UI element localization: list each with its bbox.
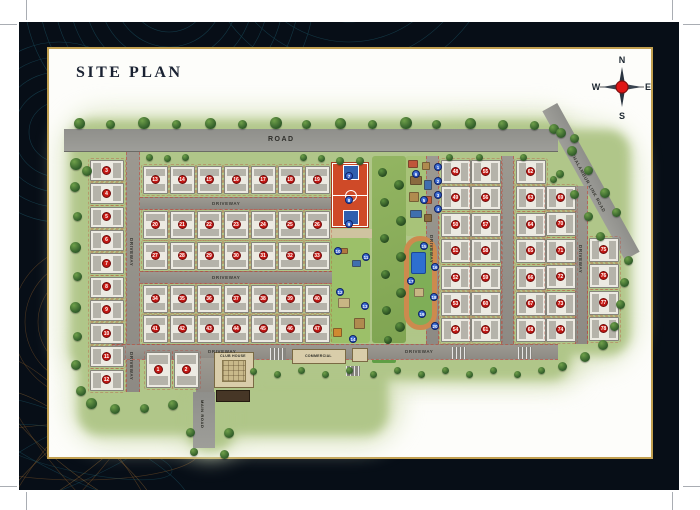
main-top-road bbox=[64, 129, 558, 152]
amenity-number-marker: 13 bbox=[361, 302, 369, 310]
villa-number-marker: 4 bbox=[102, 189, 111, 198]
amenity-structure bbox=[410, 210, 422, 218]
villa-number-marker: 25 bbox=[286, 220, 295, 229]
villa-number-marker: 3 bbox=[102, 166, 111, 175]
tree bbox=[205, 118, 216, 129]
club-annex-building bbox=[216, 390, 250, 402]
tree bbox=[394, 367, 401, 374]
tree bbox=[490, 367, 497, 374]
villa-number-marker: 17 bbox=[259, 175, 268, 184]
park-tree bbox=[396, 288, 406, 298]
villa-number-marker: 29 bbox=[205, 251, 214, 260]
park-tree bbox=[396, 252, 406, 262]
tree bbox=[514, 371, 521, 378]
tree bbox=[70, 182, 80, 192]
driveway-label: DRIVEWAY bbox=[129, 352, 134, 380]
villa-number-marker: 64 bbox=[526, 220, 535, 229]
park-tree bbox=[381, 270, 390, 279]
tree bbox=[168, 400, 178, 410]
villa-number-marker: 38 bbox=[259, 294, 268, 303]
swimming-pool bbox=[411, 252, 426, 274]
tree bbox=[368, 120, 377, 129]
tree bbox=[567, 146, 577, 156]
villa-number-marker: 2 bbox=[182, 365, 191, 374]
villa-number-marker: 47 bbox=[313, 324, 322, 333]
villa-number-marker: 36 bbox=[205, 294, 214, 303]
tree bbox=[442, 367, 449, 374]
tree bbox=[70, 158, 82, 170]
tree bbox=[612, 208, 621, 217]
villa-number-marker: 7 bbox=[102, 259, 111, 268]
park-tree bbox=[396, 216, 406, 226]
villa-number-marker: 46 bbox=[286, 324, 295, 333]
tree bbox=[530, 121, 539, 130]
tree bbox=[73, 332, 82, 341]
villa-number-marker: 75 bbox=[599, 245, 608, 254]
tree bbox=[346, 367, 353, 374]
villa-number-marker: 32 bbox=[286, 251, 295, 260]
amenity-number-marker: 16 bbox=[431, 263, 439, 271]
villa-number-marker: 69 bbox=[556, 193, 565, 202]
tree bbox=[498, 120, 508, 130]
amenity-structure bbox=[333, 328, 342, 337]
tree bbox=[335, 118, 346, 129]
tree bbox=[138, 117, 150, 129]
tree bbox=[250, 368, 257, 375]
commercial-label: COMMERCIAL bbox=[305, 354, 332, 358]
tree bbox=[370, 371, 377, 378]
tree bbox=[418, 371, 425, 378]
compass-south-label: S bbox=[619, 111, 625, 121]
tree bbox=[476, 154, 483, 161]
tree bbox=[140, 404, 149, 413]
compass-rose: N E S W bbox=[590, 53, 654, 123]
villa-number-marker: 60 bbox=[481, 299, 490, 308]
villa-number-marker: 50 bbox=[451, 220, 460, 229]
amenity-number-marker: 17 bbox=[407, 277, 415, 285]
tree bbox=[70, 242, 81, 253]
villa-number-marker: 55 bbox=[481, 167, 490, 176]
tree bbox=[73, 272, 82, 281]
villa-number-marker: 62 bbox=[526, 167, 535, 176]
tree bbox=[446, 154, 453, 161]
amenity-number-marker: 7 bbox=[345, 172, 353, 180]
tree bbox=[600, 188, 610, 198]
amenity-structure bbox=[352, 260, 361, 267]
villa-number-marker: 22 bbox=[205, 220, 214, 229]
park-tree bbox=[380, 234, 389, 243]
tree bbox=[106, 120, 115, 129]
tree bbox=[164, 155, 171, 162]
tree bbox=[556, 170, 564, 178]
villa-number-marker: 13 bbox=[151, 175, 160, 184]
club-house-floorplan bbox=[222, 360, 246, 382]
tree bbox=[570, 190, 579, 199]
villa-number-marker: 53 bbox=[451, 299, 460, 308]
villa-number-marker: 44 bbox=[232, 324, 241, 333]
amenity-number-marker: 18 bbox=[430, 293, 438, 301]
tree bbox=[302, 120, 311, 129]
compass-east-label: E bbox=[645, 82, 651, 92]
villa-number-marker: 28 bbox=[178, 251, 187, 260]
tree bbox=[298, 367, 305, 374]
tree bbox=[400, 117, 412, 129]
amenity-number-marker: 9 bbox=[345, 220, 353, 228]
villa-number-marker: 73 bbox=[556, 299, 565, 308]
villa-number-marker: 33 bbox=[313, 251, 322, 260]
tree bbox=[356, 157, 364, 165]
park-tree bbox=[394, 180, 404, 190]
tree bbox=[146, 154, 153, 161]
tree bbox=[596, 232, 605, 241]
tree bbox=[71, 360, 81, 370]
park-tree bbox=[395, 322, 405, 332]
driveway-label: DRIVEWAY bbox=[212, 275, 240, 280]
amenity-structure bbox=[414, 288, 424, 297]
villa-number-marker: 27 bbox=[151, 251, 160, 260]
amenity-number-marker: 14 bbox=[349, 335, 357, 343]
parking-bay bbox=[518, 347, 532, 359]
tree bbox=[76, 386, 86, 396]
tree bbox=[556, 128, 566, 138]
villa-number-marker: 77 bbox=[599, 298, 608, 307]
tree bbox=[318, 155, 325, 162]
club-house-label: CLUB HOUSE bbox=[220, 354, 246, 358]
tree bbox=[432, 120, 441, 129]
utility-building bbox=[352, 348, 368, 362]
park-tree bbox=[382, 306, 391, 315]
villa-number-marker: 24 bbox=[259, 220, 268, 229]
tree bbox=[336, 157, 344, 165]
villa-number-marker: 48 bbox=[451, 167, 460, 176]
tree bbox=[172, 120, 181, 129]
driveway-label: DRIVEWAY bbox=[212, 201, 240, 206]
tree bbox=[110, 404, 120, 414]
villa-number-marker: 10 bbox=[102, 329, 111, 338]
parking-bay bbox=[270, 348, 286, 360]
villa-number-marker: 18 bbox=[286, 175, 295, 184]
tree bbox=[620, 278, 629, 287]
villa-number-marker: 42 bbox=[178, 324, 187, 333]
villa-number-marker: 19 bbox=[313, 175, 322, 184]
villa-number-marker: 23 bbox=[232, 220, 241, 229]
amenity-number-marker: 10 bbox=[334, 247, 342, 255]
amenity-number-marker: 5 bbox=[420, 196, 428, 204]
villa-number-marker: 14 bbox=[178, 175, 187, 184]
villa-number-marker: 15 bbox=[205, 175, 214, 184]
tree bbox=[322, 371, 329, 378]
tree bbox=[186, 428, 195, 437]
villa-number-marker: 66 bbox=[526, 273, 535, 282]
park-tree bbox=[380, 198, 389, 207]
entry-road-label: MAIN ROAD bbox=[200, 400, 205, 429]
tree bbox=[70, 302, 81, 313]
tree bbox=[465, 118, 476, 129]
villa-number-marker: 31 bbox=[259, 251, 268, 260]
tree bbox=[86, 398, 97, 409]
amenity-number-marker: 6 bbox=[412, 170, 420, 178]
tree bbox=[74, 118, 85, 129]
villa-number-marker: 37 bbox=[232, 294, 241, 303]
tree bbox=[570, 134, 579, 143]
driveway-label: DRIVEWAY bbox=[405, 349, 433, 354]
tree bbox=[190, 448, 198, 456]
tree bbox=[580, 352, 590, 362]
villa-number-marker: 34 bbox=[151, 294, 160, 303]
tree bbox=[82, 166, 92, 176]
park-tree bbox=[384, 336, 392, 344]
villa-number-marker: 43 bbox=[205, 324, 214, 333]
villa-number-marker: 20 bbox=[151, 220, 160, 229]
tree bbox=[270, 117, 282, 129]
driveway-label: DRIVEWAY bbox=[578, 245, 583, 273]
amenity-structure bbox=[354, 318, 365, 329]
tree bbox=[224, 428, 234, 438]
villa-number-marker: 1 bbox=[154, 365, 163, 374]
tree bbox=[182, 154, 189, 161]
amenity-number-marker: 3 bbox=[434, 191, 442, 199]
villa-number-marker: 45 bbox=[259, 324, 268, 333]
tree bbox=[550, 176, 557, 183]
villa-number-marker: 71 bbox=[556, 246, 565, 255]
amenity-number-marker: 19 bbox=[418, 310, 426, 318]
amenity-structure bbox=[338, 298, 350, 308]
amenity-number-marker: 15 bbox=[420, 242, 428, 250]
villa-number-marker: 59 bbox=[481, 273, 490, 282]
villa-number-marker: 16 bbox=[232, 175, 241, 184]
amenity-structure bbox=[424, 214, 432, 222]
amenity-number-marker: 20 bbox=[431, 322, 439, 330]
driveway-label: DRIVEWAY bbox=[429, 235, 434, 263]
tree bbox=[584, 212, 593, 221]
tree bbox=[220, 450, 229, 459]
compass-west-label: W bbox=[592, 82, 601, 92]
villa-number-marker: 39 bbox=[286, 294, 295, 303]
park-tree bbox=[378, 168, 387, 177]
villa-number-marker: 52 bbox=[451, 273, 460, 282]
amenity-structure bbox=[422, 162, 430, 170]
tree bbox=[538, 367, 545, 374]
driveway-right-2 bbox=[501, 156, 514, 344]
villa-number-marker: 21 bbox=[178, 220, 187, 229]
tree bbox=[300, 154, 307, 161]
villa-number-marker: 11 bbox=[102, 352, 111, 361]
amenity-number-marker: 11 bbox=[362, 253, 370, 261]
villa-number-marker: 57 bbox=[481, 220, 490, 229]
villa-number-marker: 8 bbox=[102, 282, 111, 291]
top-road-label: ROAD bbox=[268, 136, 295, 143]
compass-north-label: N bbox=[619, 55, 626, 65]
tree bbox=[73, 212, 82, 221]
tree bbox=[466, 371, 473, 378]
amenity-number-marker: 4 bbox=[434, 205, 442, 213]
villa-number-marker: 26 bbox=[313, 220, 322, 229]
amenity-number-marker: 12 bbox=[336, 288, 344, 296]
villa-number-marker: 74 bbox=[556, 325, 565, 334]
villa-number-marker: 40 bbox=[313, 294, 322, 303]
tree bbox=[520, 154, 527, 161]
tree bbox=[584, 166, 593, 175]
villa-number-marker: 30 bbox=[232, 251, 241, 260]
amenity-number-marker: 8 bbox=[345, 196, 353, 204]
amenity-number-marker: 2 bbox=[434, 177, 442, 185]
tree bbox=[598, 340, 608, 350]
amenity-structure bbox=[424, 180, 432, 190]
tree bbox=[238, 120, 247, 129]
tree bbox=[558, 362, 567, 371]
tree bbox=[274, 371, 281, 378]
villa-number-marker: 35 bbox=[178, 294, 187, 303]
driveway-label: DRIVEWAY bbox=[129, 238, 134, 266]
villa-number-marker: 67 bbox=[526, 299, 535, 308]
amenity-structure bbox=[408, 160, 418, 168]
parking-bay bbox=[452, 347, 466, 359]
tree bbox=[624, 256, 633, 265]
villa-number-marker: 41 bbox=[151, 324, 160, 333]
amenity-number-marker: 1 bbox=[434, 163, 442, 171]
amenity-structure bbox=[409, 192, 419, 202]
tree bbox=[610, 322, 619, 331]
tree bbox=[616, 300, 625, 309]
